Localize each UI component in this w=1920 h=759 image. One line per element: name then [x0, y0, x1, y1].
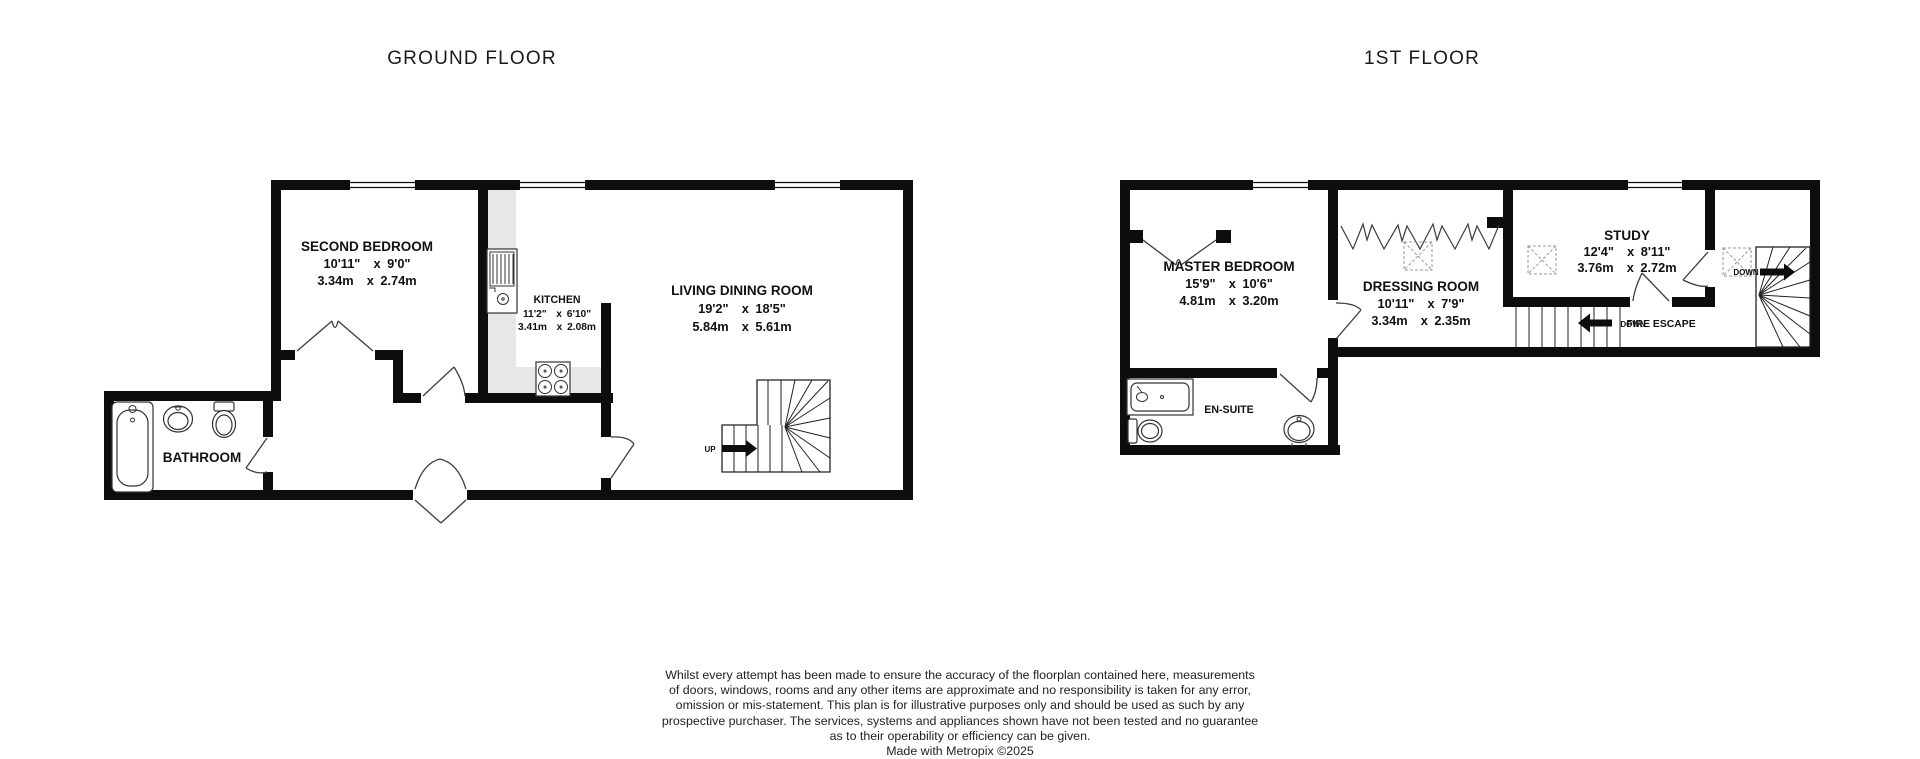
svg-text:19'2" x 18'5": 19'2" x 18'5" — [698, 301, 786, 316]
wardrobe-zigzag-icon — [1341, 224, 1499, 249]
disclaimer-text: Whilst every attempt has been made to en… — [0, 668, 1920, 744]
svg-text:4.81m x 3.20m: 4.81m x 3.20m — [1179, 293, 1278, 308]
svg-text:15'9" x 10'6": 15'9" x 10'6" — [1185, 276, 1273, 291]
svg-text:EN-SUITE: EN-SUITE — [1204, 404, 1253, 416]
staircase-first: DOWN — [1733, 247, 1810, 347]
sink-icon — [1284, 416, 1314, 448]
svg-text:10'11" x 7'9": 10'11" x 7'9" — [1378, 296, 1465, 311]
svg-text:5.84m x 5.61m: 5.84m x 5.61m — [692, 319, 791, 334]
svg-text:12'4" x 8'11": 12'4" x 8'11" — [1584, 244, 1671, 259]
down-label: DOWN — [1733, 268, 1759, 277]
first-floor-title: 1ST FLOOR — [1364, 48, 1480, 69]
room-label-kitchen: KITCHEN 11'2" x 6'10" 3.41m x 2.08m — [518, 294, 596, 333]
first-floor-plan: 1ST FLOOR — [1120, 48, 1820, 455]
up-label: UP — [704, 445, 716, 454]
sink-icon — [164, 406, 193, 432]
room-label-en-suite: EN-SUITE — [1204, 404, 1253, 416]
footer: Whilst every attempt has been made to en… — [0, 668, 1920, 759]
svg-text:11'2" x 6'10": 11'2" x 6'10" — [523, 309, 591, 320]
svg-text:3.34m x 2.74m: 3.34m x 2.74m — [317, 273, 416, 288]
room-label-living-dining: LIVING DINING ROOM 19'2" x 18'5" 5.84m x… — [671, 283, 813, 334]
metropix-credit: Made with Metropix ©2025 — [0, 744, 1920, 759]
hob-icon — [536, 362, 570, 396]
ground-floor-title: GROUND FLOOR — [387, 48, 557, 69]
svg-text:3.76m x 2.72m: 3.76m x 2.72m — [1577, 260, 1676, 275]
room-label-master-bedroom: MASTER BEDROOM 15'9" x 10'6" 4.81m x 3.2… — [1163, 259, 1294, 308]
toilet-icon — [1128, 419, 1162, 443]
svg-text:DRESSING ROOM: DRESSING ROOM — [1363, 279, 1479, 294]
svg-text:BATHROOM: BATHROOM — [163, 450, 242, 465]
shower-icon — [1127, 379, 1193, 415]
kitchen-sink-icon — [487, 249, 517, 313]
staircase-ground: UP — [704, 380, 830, 472]
svg-text:STUDY: STUDY — [1604, 228, 1650, 243]
svg-text:SECOND BEDROOM: SECOND BEDROOM — [301, 239, 433, 254]
floorplan-canvas: GROUND FLOOR — [0, 0, 1920, 758]
toilet-icon — [213, 402, 236, 438]
svg-text:KITCHEN: KITCHEN — [533, 294, 580, 306]
room-label-dressing-room: DRESSING ROOM 10'11" x 7'9" 3.34m x 2.35… — [1363, 279, 1479, 328]
room-label-second-bedroom: SECOND BEDROOM 10'11" x 9'0" 3.34m x 2.7… — [301, 239, 433, 288]
bathtub-icon — [112, 402, 153, 492]
room-label-study: STUDY 12'4" x 8'11" 3.76m x 2.72m — [1577, 228, 1676, 275]
ground-floor-plan: GROUND FLOOR — [104, 48, 913, 523]
svg-text:3.34m x 2.35m: 3.34m x 2.35m — [1371, 313, 1470, 328]
svg-text:3.41m x 2.08m: 3.41m x 2.08m — [518, 322, 596, 333]
fire-escape-stairs: DOWN FIRE ESCAPE — [1516, 307, 1696, 347]
room-label-bathroom: BATHROOM — [163, 450, 242, 465]
svg-text:LIVING DINING ROOM: LIVING DINING ROOM — [671, 283, 813, 298]
svg-text:10'11" x 9'0": 10'11" x 9'0" — [324, 256, 411, 271]
fire-escape-label: FIRE ESCAPE — [1626, 319, 1695, 330]
svg-text:MASTER BEDROOM: MASTER BEDROOM — [1163, 259, 1294, 274]
